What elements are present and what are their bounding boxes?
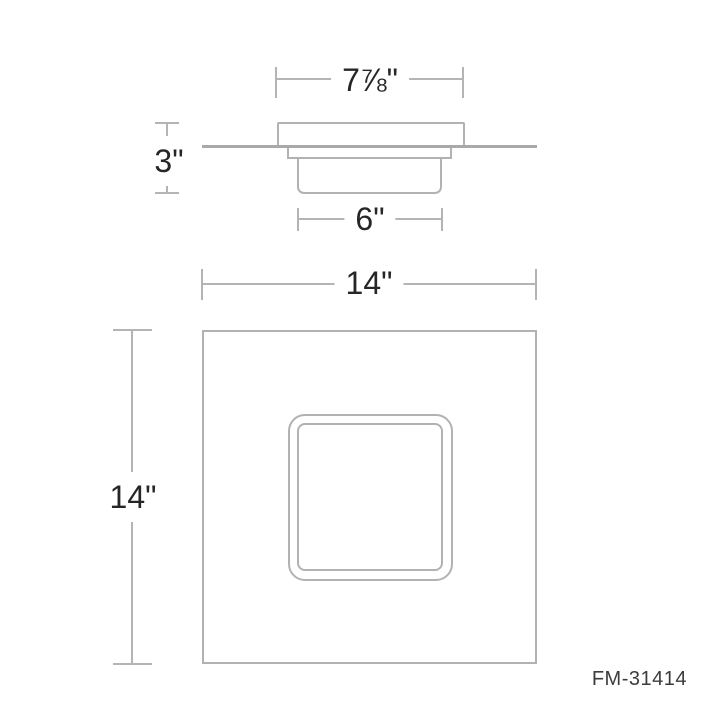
dim-label-canopy-width: 7⅞" [331, 60, 409, 100]
dim-label-overall-height: 14" [107, 472, 160, 522]
dim-tick [113, 663, 152, 665]
dim-tick [535, 269, 537, 300]
dimension-drawing: 7⅞" 3" 6" 14" [0, 0, 720, 720]
dim-label-overall-width: 14" [335, 263, 404, 303]
dim-tick [297, 208, 299, 231]
dim-tick [155, 122, 179, 124]
dim-tick [462, 67, 464, 98]
dim-tick [275, 67, 277, 98]
dim-label-fixture-height: 3" [151, 136, 186, 186]
dim-tick [201, 269, 203, 300]
dim-tick [113, 329, 152, 331]
lens-inner-outline [297, 423, 443, 571]
dim-tick [155, 192, 179, 194]
part-number-label: FM-31414 [592, 668, 687, 691]
trim-flange-outline [287, 148, 452, 159]
dim-label-body-width: 6" [344, 199, 395, 239]
dim-tick [441, 208, 443, 231]
fixture-body-outline [297, 159, 442, 194]
